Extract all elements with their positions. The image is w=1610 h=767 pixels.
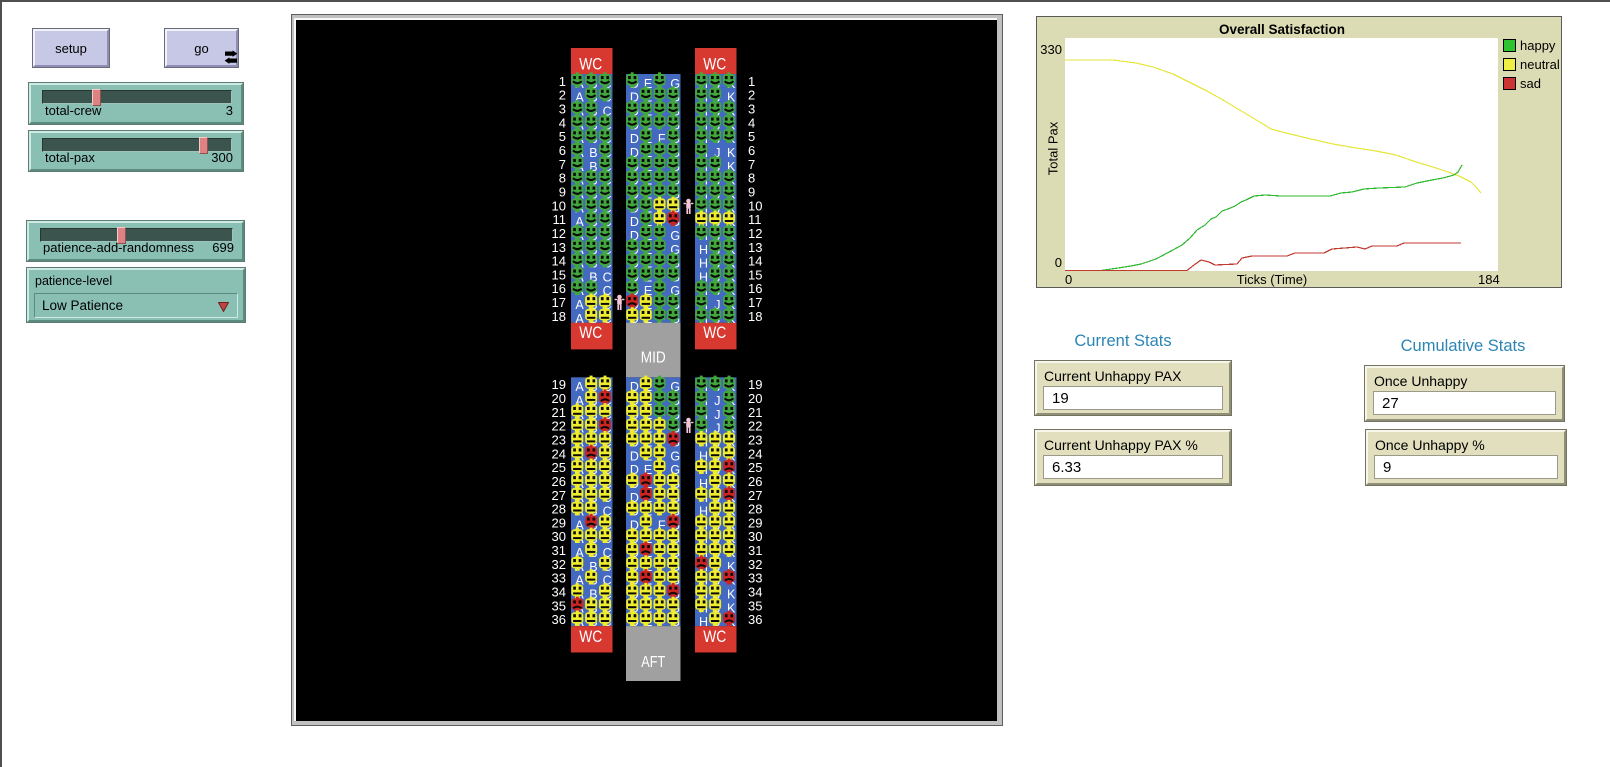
svg-text:14: 14 [552, 254, 566, 269]
svg-text:WC: WC [579, 628, 602, 646]
svg-text:36: 36 [552, 612, 566, 627]
svg-text:WC: WC [579, 324, 602, 342]
svg-text:21: 21 [552, 405, 566, 420]
svg-text:27: 27 [748, 488, 762, 503]
svg-text:11: 11 [553, 212, 567, 227]
svg-text:G: G [670, 449, 680, 463]
svg-text:WC: WC [579, 56, 602, 74]
svg-text:A: A [575, 312, 584, 326]
svg-text:7: 7 [559, 157, 566, 172]
svg-text:16: 16 [552, 281, 566, 296]
svg-text:WC: WC [703, 324, 726, 342]
svg-text:13: 13 [552, 240, 566, 255]
svg-text:24: 24 [748, 446, 762, 461]
svg-text:20: 20 [552, 391, 566, 406]
svg-text:14: 14 [748, 254, 762, 269]
svg-text:28: 28 [748, 502, 762, 517]
svg-text:30: 30 [748, 529, 762, 544]
svg-text:4: 4 [748, 115, 755, 130]
svg-text:3: 3 [559, 102, 566, 117]
svg-text:33: 33 [748, 571, 762, 586]
svg-text:32: 32 [748, 557, 762, 572]
svg-text:A: A [575, 298, 584, 312]
svg-text:18: 18 [748, 309, 762, 324]
svg-text:11: 11 [748, 212, 762, 227]
svg-text:19: 19 [552, 377, 566, 392]
svg-text:K: K [727, 588, 736, 602]
svg-text:33: 33 [552, 571, 566, 586]
svg-text:18: 18 [552, 309, 566, 324]
svg-text:34: 34 [552, 585, 566, 600]
svg-text:12: 12 [552, 226, 566, 241]
svg-text:MID: MID [641, 350, 666, 367]
svg-text:H: H [699, 615, 708, 629]
svg-text:34: 34 [748, 585, 762, 600]
svg-text:31: 31 [552, 543, 566, 558]
svg-text:35: 35 [748, 598, 762, 613]
svg-text:17: 17 [748, 295, 762, 310]
svg-text:29: 29 [552, 515, 566, 530]
svg-text:9: 9 [559, 185, 566, 200]
svg-text:K: K [727, 146, 736, 160]
svg-text:35: 35 [552, 598, 566, 613]
svg-text:H: H [699, 257, 708, 271]
svg-text:G: G [670, 229, 680, 243]
svg-text:9: 9 [748, 185, 755, 200]
svg-text:31: 31 [748, 543, 762, 558]
svg-text:A: A [575, 380, 584, 394]
svg-text:22: 22 [552, 419, 566, 434]
svg-text:36: 36 [748, 612, 762, 627]
svg-text:27: 27 [552, 488, 566, 503]
svg-text:15: 15 [748, 267, 762, 282]
svg-text:17: 17 [552, 295, 566, 310]
svg-text:10: 10 [748, 198, 762, 213]
svg-text:J: J [714, 394, 720, 408]
svg-text:6: 6 [748, 143, 755, 158]
svg-text:12: 12 [748, 226, 762, 241]
svg-text:15: 15 [552, 267, 566, 282]
svg-text:8: 8 [559, 171, 566, 186]
svg-text:1: 1 [559, 74, 566, 89]
svg-text:J: J [714, 408, 720, 422]
svg-text:D: D [630, 215, 639, 229]
svg-text:AFT: AFT [641, 654, 665, 671]
svg-text:30: 30 [552, 529, 566, 544]
svg-text:13: 13 [748, 240, 762, 255]
svg-text:29: 29 [748, 515, 762, 530]
svg-text:25: 25 [748, 460, 762, 475]
svg-text:19: 19 [748, 377, 762, 392]
svg-text:WC: WC [703, 628, 726, 646]
svg-text:H: H [699, 243, 708, 257]
svg-text:3: 3 [748, 102, 755, 117]
svg-text:5: 5 [559, 129, 566, 144]
svg-text:25: 25 [552, 460, 566, 475]
svg-text:8: 8 [748, 171, 755, 186]
svg-text:22: 22 [748, 419, 762, 434]
svg-text:28: 28 [552, 502, 566, 517]
svg-text:5: 5 [748, 129, 755, 144]
svg-text:1: 1 [748, 74, 755, 89]
svg-text:4: 4 [559, 115, 566, 130]
svg-text:C: C [603, 270, 612, 284]
svg-text:6: 6 [559, 143, 566, 158]
svg-text:B: B [589, 146, 597, 160]
svg-text:20: 20 [748, 391, 762, 406]
svg-text:26: 26 [552, 474, 566, 489]
svg-text:24: 24 [552, 446, 566, 461]
svg-text:D: D [630, 449, 639, 463]
svg-text:10: 10 [552, 198, 566, 213]
svg-text:26: 26 [748, 474, 762, 489]
svg-text:WC: WC [703, 56, 726, 74]
svg-text:16: 16 [748, 281, 762, 296]
svg-text:7: 7 [748, 157, 755, 172]
svg-text:D: D [630, 132, 639, 146]
svg-text:23: 23 [552, 433, 566, 448]
svg-text:2: 2 [748, 88, 755, 103]
svg-text:23: 23 [748, 433, 762, 448]
svg-text:32: 32 [552, 557, 566, 572]
svg-text:2: 2 [559, 88, 566, 103]
svg-text:21: 21 [748, 405, 762, 420]
